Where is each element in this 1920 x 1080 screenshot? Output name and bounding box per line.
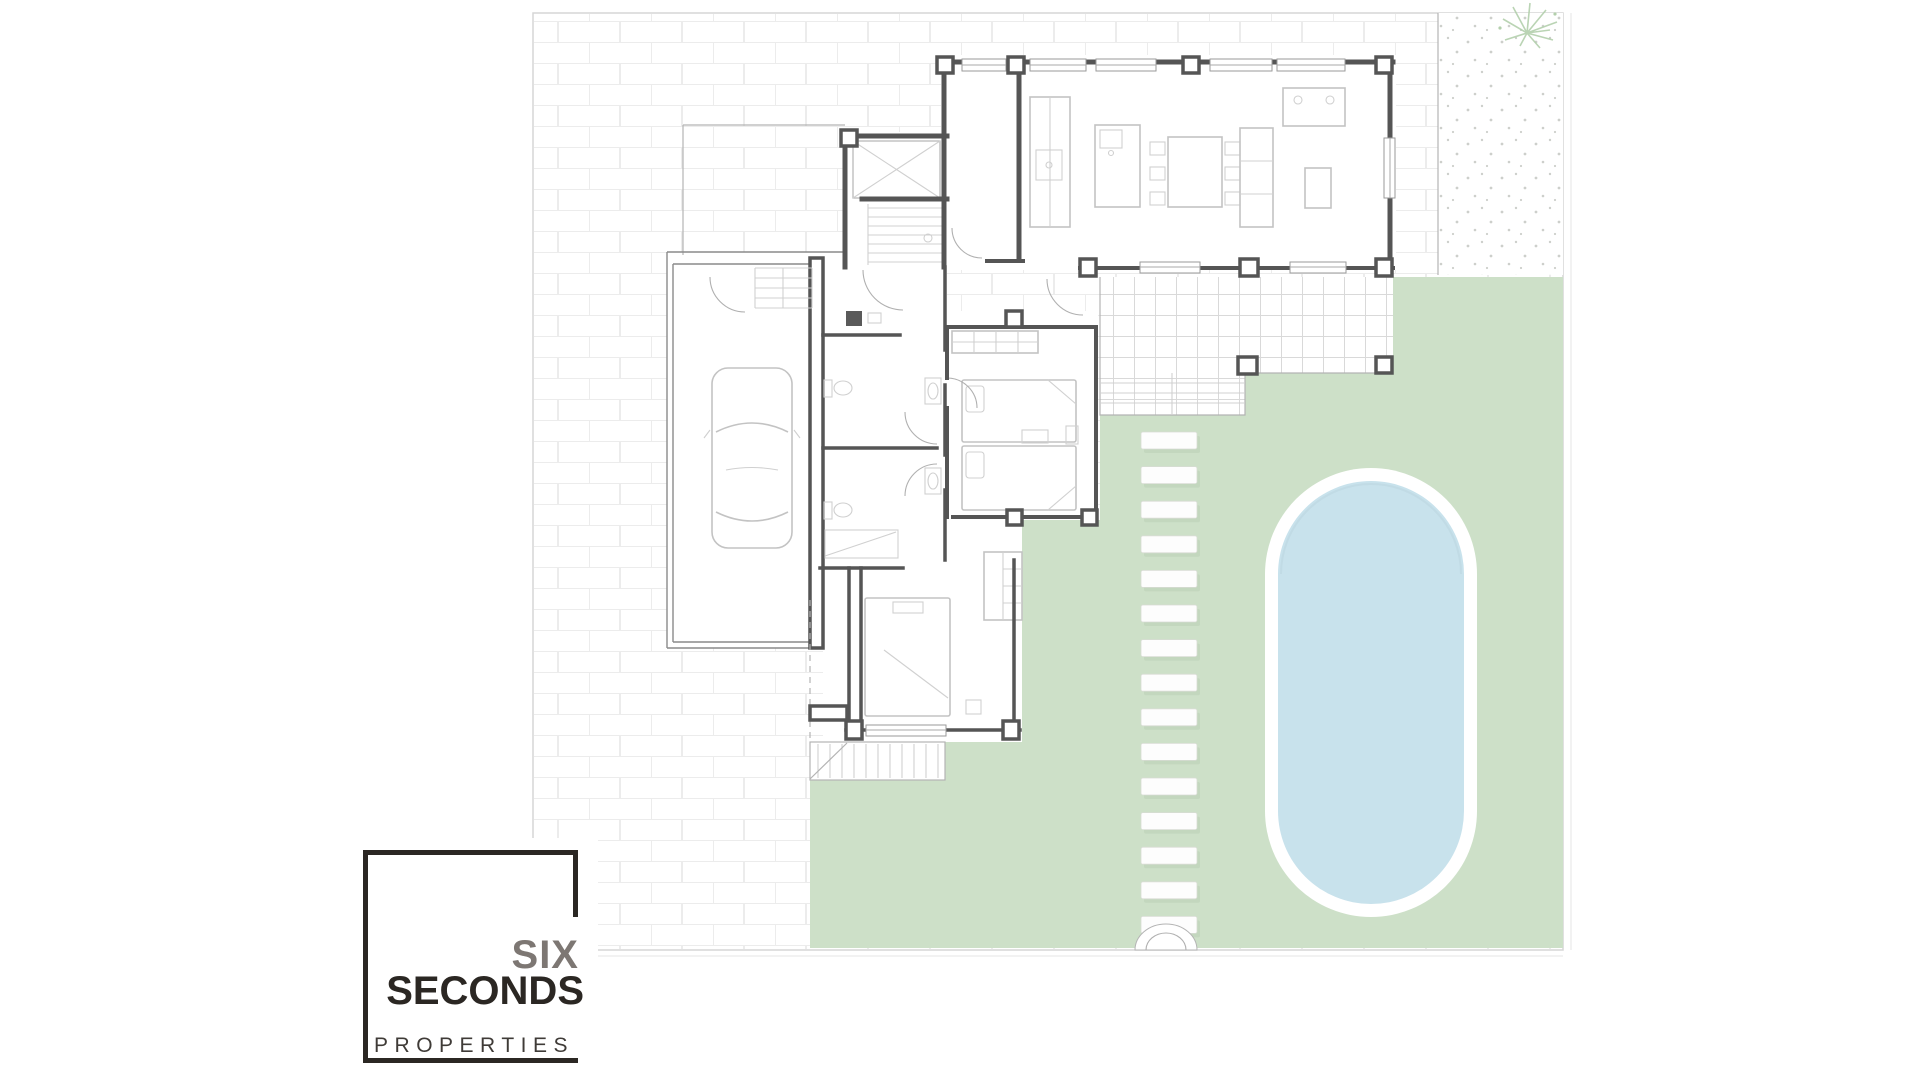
site-plan xyxy=(0,0,1920,1080)
pool-water xyxy=(1278,481,1464,904)
logo-word-properties: PROPERTIES xyxy=(374,1035,574,1056)
logo-frame: SIX SECONDS PROPERTIES xyxy=(363,850,578,1063)
floor-plan-page: SIX SECONDS PROPERTIES xyxy=(0,0,1920,1080)
logo-frame-stub xyxy=(573,855,578,917)
gravel-bed xyxy=(1438,3,1563,275)
swimming-pool xyxy=(1265,468,1477,917)
logo-word-seconds: SECONDS xyxy=(386,971,584,1011)
